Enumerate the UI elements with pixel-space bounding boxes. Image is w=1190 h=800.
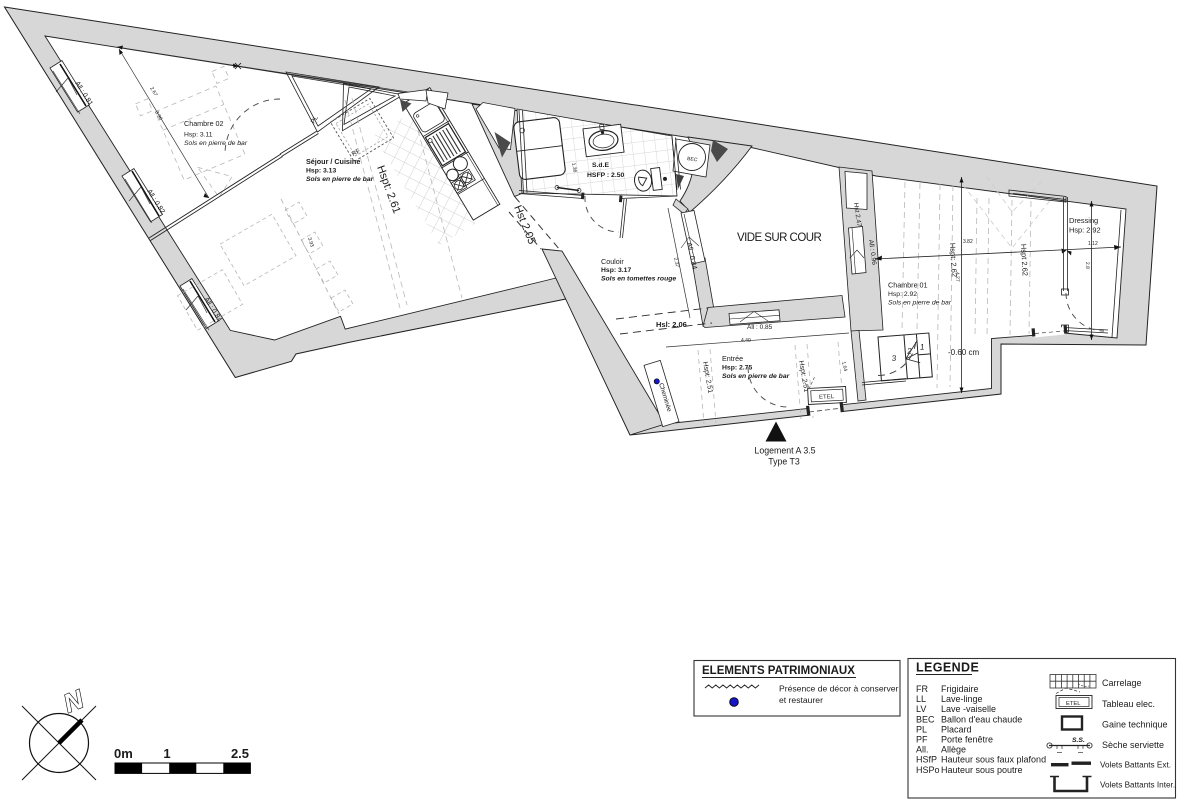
svg-text:FR: FR [916, 684, 928, 694]
svg-text:HSfP: HSfP [916, 755, 937, 765]
svg-text:Frigidaire: Frigidaire [941, 684, 979, 694]
svg-text:Type T3: Type T3 [768, 457, 800, 467]
svg-text:Gaine technique: Gaine technique [1102, 720, 1168, 730]
svg-text:Hsl: 2.06: Hsl: 2.06 [656, 320, 687, 329]
svg-text:Sols en pierre de bar: Sols en pierre de bar [306, 176, 374, 183]
svg-text:1.12: 1.12 [1088, 241, 1098, 247]
svg-text:Hauteur sous poutre: Hauteur sous poutre [941, 765, 1023, 775]
svg-text:S.S.: S.S. [1072, 737, 1085, 744]
svg-text:HSFP : 2.50: HSFP : 2.50 [587, 172, 624, 179]
svg-text:Hspt 2.62: Hspt 2.62 [1019, 244, 1030, 277]
svg-text:Hsp: 2.92: Hsp: 2.92 [1069, 226, 1101, 235]
svg-text:Couloir: Couloir [601, 257, 624, 266]
svg-text:Sèche serviette: Sèche serviette [1102, 740, 1164, 750]
svg-text:ETEL: ETEL [1066, 701, 1081, 707]
svg-text:Entrée: Entrée [722, 354, 743, 363]
svg-text:PL: PL [916, 724, 927, 734]
svg-text:Allège: Allège [941, 745, 966, 755]
svg-text:VIDE SUR COUR: VIDE SUR COUR [737, 232, 821, 244]
svg-text:Séjour / Cuisine: Séjour / Cuisine [306, 157, 360, 166]
svg-text:Volets Battants Inter.: Volets Battants Inter. [1100, 781, 1175, 790]
svg-text:1: 1 [163, 746, 170, 761]
svg-text:Dressing: Dressing [1069, 216, 1098, 225]
svg-text:S.d.E: S.d.E [592, 162, 609, 169]
svg-text:Sols en pierre de bar: Sols en pierre de bar [184, 140, 248, 147]
svg-text:2.8: 2.8 [1084, 262, 1090, 269]
svg-text:3.82: 3.82 [963, 239, 973, 245]
svg-text:LV: LV [916, 704, 926, 714]
svg-text:PF: PF [916, 735, 928, 745]
svg-text:Hsp: 3.17: Hsp: 3.17 [601, 267, 631, 274]
svg-text:HSPo: HSPo [916, 765, 940, 775]
svg-text:LEGENDE: LEGENDE [916, 661, 979, 675]
svg-text:Sols en pierre de bar: Sols en pierre de bar [888, 300, 952, 307]
svg-text:Sols en tomettes rouge: Sols en tomettes rouge [601, 276, 676, 283]
svg-text:Volets Battants Ext.: Volets Battants Ext. [1100, 761, 1171, 770]
svg-text:0m: 0m [114, 746, 133, 761]
svg-text:BEC: BEC [916, 714, 935, 724]
svg-text:Sols en pierre de bar: Sols en pierre de bar [722, 373, 790, 380]
svg-text:All : 0.85: All : 0.85 [747, 324, 773, 331]
svg-text:1: 1 [920, 342, 925, 351]
svg-text:Chambre 02: Chambre 02 [184, 119, 224, 128]
svg-text:Logement A 3.5: Logement A 3.5 [754, 446, 815, 456]
svg-text:LL: LL [916, 694, 926, 704]
svg-text:Lave -vaiselle: Lave -vaiselle [941, 704, 996, 714]
svg-text:Porte fenêtre: Porte fenêtre [941, 735, 993, 745]
svg-text:2.5: 2.5 [231, 746, 249, 761]
svg-text:Présence de décor à conserver: Présence de décor à conserver [779, 684, 899, 694]
svg-text:Hauteur sous faux plafond: Hauteur sous faux plafond [941, 755, 1046, 765]
svg-text:ELEMENTS PATRIMONIAUX: ELEMENTS PATRIMONIAUX [702, 665, 855, 677]
svg-text:Hspt: 2.62: Hspt: 2.62 [948, 243, 959, 278]
svg-text:Tableau elec.: Tableau elec. [1102, 699, 1155, 709]
svg-text:Chambre 01: Chambre 01 [888, 281, 928, 290]
svg-text:Lave-linge: Lave-linge [941, 694, 983, 704]
svg-text:Carrelage: Carrelage [1102, 678, 1142, 688]
svg-text:et restaurer: et restaurer [779, 695, 823, 705]
svg-text:All.: All. [916, 745, 929, 755]
svg-text:-0.60 cm: -0.60 cm [948, 348, 979, 357]
svg-text:Ballon d'eau chaude: Ballon d'eau chaude [941, 714, 1022, 724]
svg-text:Placard: Placard [941, 724, 972, 734]
svg-text:Hsp: 3.11: Hsp: 3.11 [184, 132, 213, 139]
svg-text:Hsp: 3.13: Hsp: 3.13 [306, 168, 336, 175]
svg-text:4.40: 4.40 [741, 338, 751, 344]
svg-text:ETEL: ETEL [819, 394, 835, 401]
